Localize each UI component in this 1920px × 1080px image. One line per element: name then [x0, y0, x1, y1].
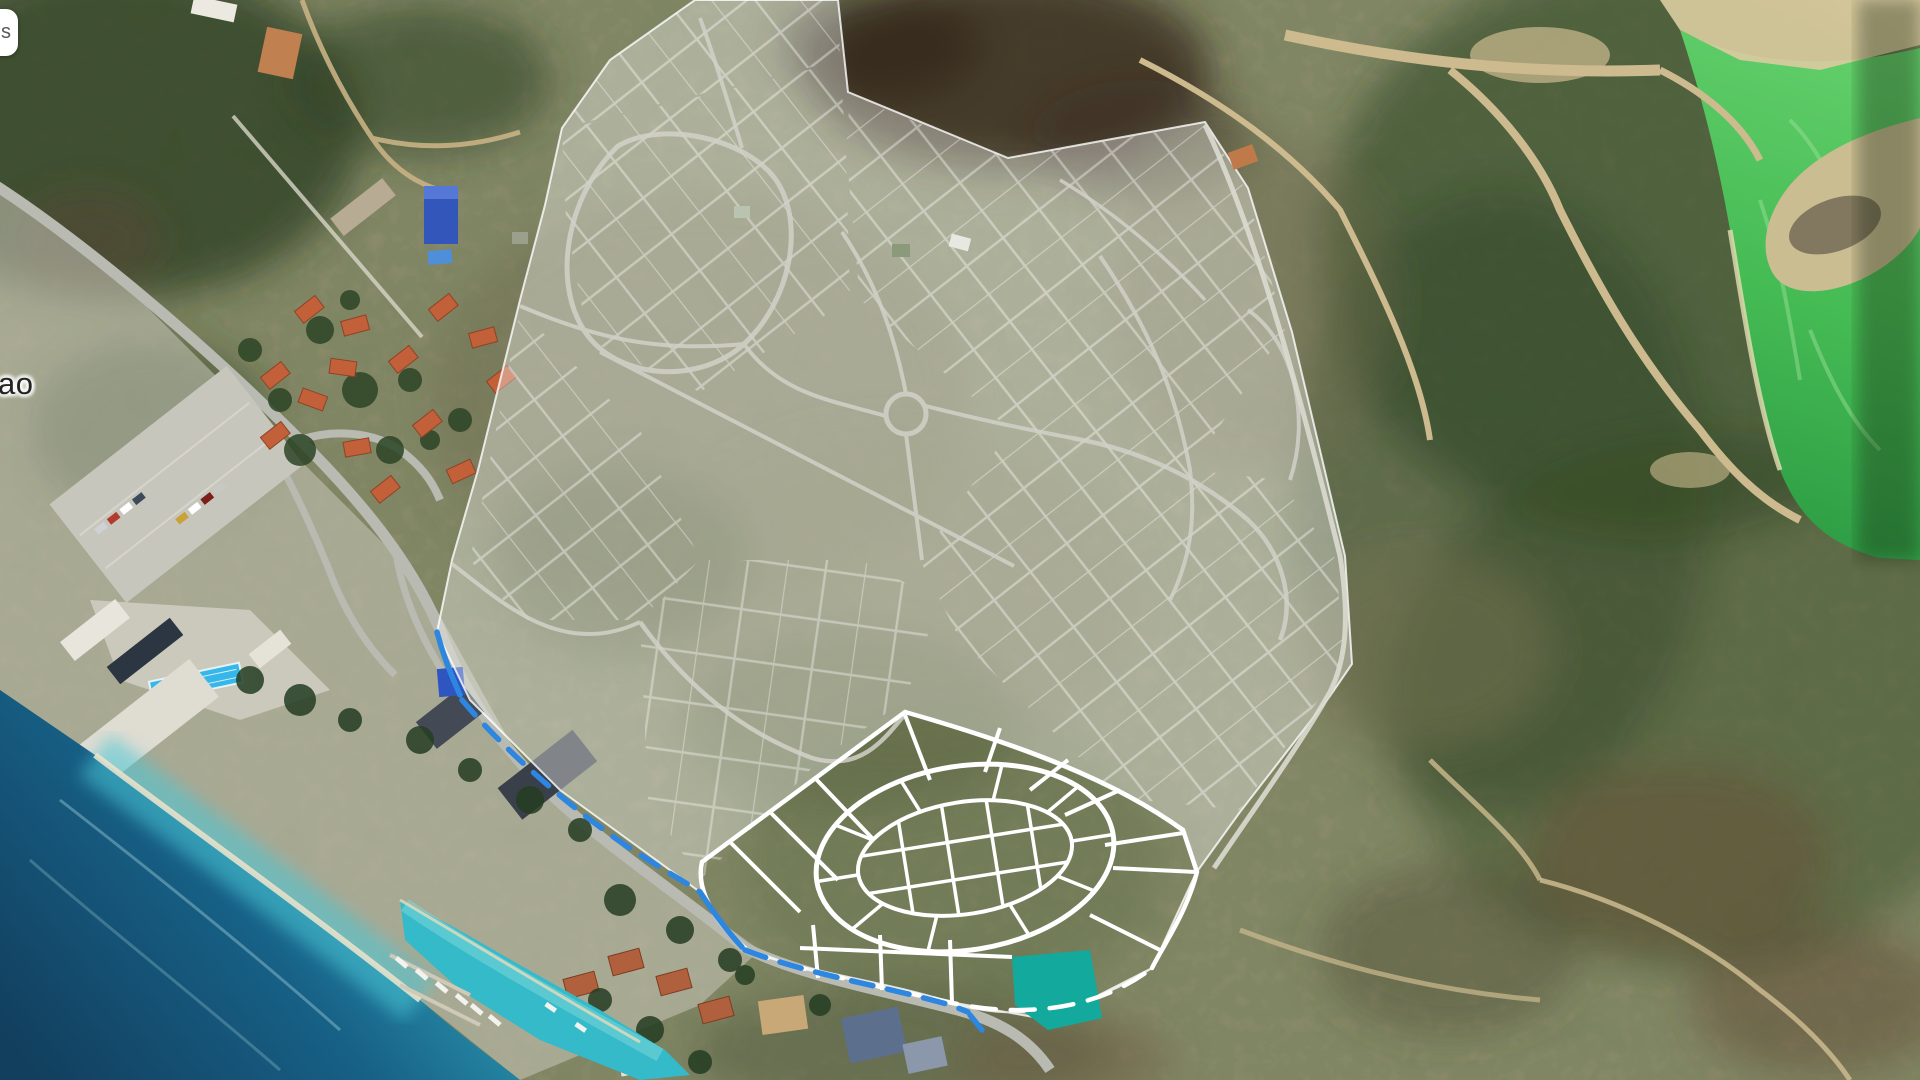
- satellite-map[interactable]: s ao: [0, 0, 1920, 1080]
- map-control-button-label: s: [1, 21, 11, 44]
- map-control-button-partial[interactable]: s: [0, 9, 18, 56]
- place-label-partial: ao: [0, 366, 33, 402]
- satellite-canvas: [0, 0, 1920, 1080]
